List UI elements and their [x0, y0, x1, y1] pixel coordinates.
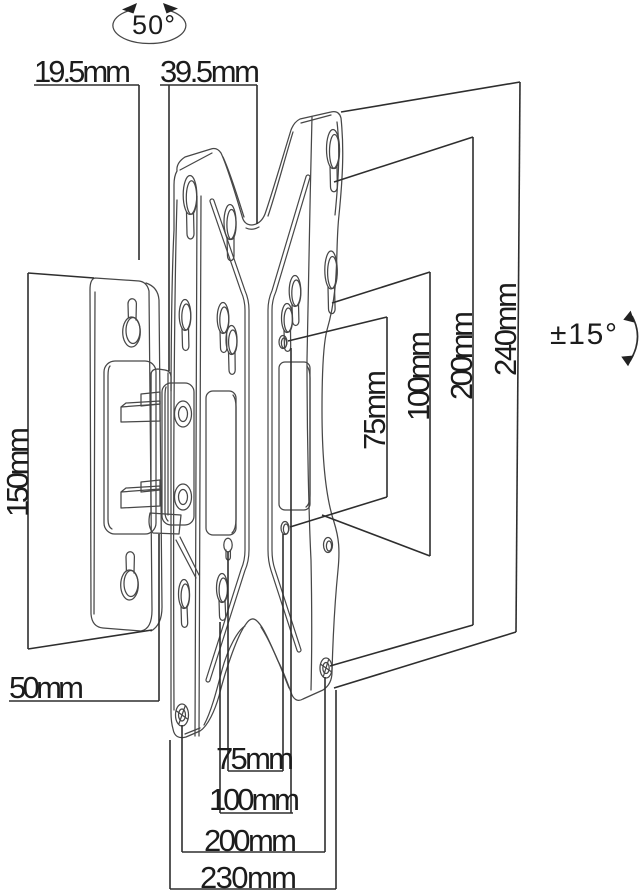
svg-text:230mm: 230mm [200, 860, 297, 895]
svg-text:200mm: 200mm [204, 823, 297, 858]
svg-text:75mm: 75mm [357, 370, 392, 450]
svg-text:39.5mm: 39.5mm [160, 54, 260, 89]
svg-text:±15°: ±15° [550, 318, 617, 351]
svg-text:100mm: 100mm [401, 331, 436, 421]
svg-text:50mm: 50mm [9, 670, 84, 705]
svg-text:50°: 50° [132, 10, 175, 40]
svg-text:100mm: 100mm [209, 782, 300, 817]
svg-text:75mm: 75mm [216, 741, 294, 776]
svg-text:240mm: 240mm [488, 282, 523, 376]
svg-text:19.5mm: 19.5mm [34, 54, 131, 89]
svg-text:200mm: 200mm [444, 311, 479, 400]
svg-text:150mm: 150mm [0, 427, 35, 517]
